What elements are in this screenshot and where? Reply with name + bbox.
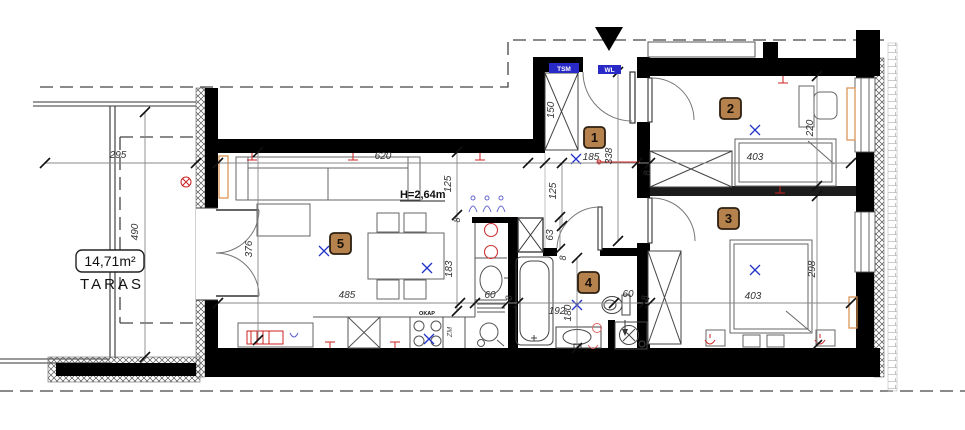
floor-plan-canvas: 295 490 620 376 485 125 125 150 185 338 …	[0, 0, 965, 430]
tv-icon	[247, 331, 283, 344]
dim-wall8-wc: 8	[640, 295, 650, 300]
upper-niche-outline	[648, 42, 755, 57]
console-mark	[290, 333, 298, 337]
stool	[743, 335, 760, 347]
ventilation-shaft	[518, 218, 543, 252]
dim-living-width: 620	[375, 151, 392, 162]
burner	[431, 321, 441, 331]
kitchen-sink-bowl	[480, 323, 498, 341]
dim-kitchen-top8: 8	[452, 217, 462, 222]
dim-wall8-hall: 8	[642, 170, 652, 175]
badge-room-5: 5	[330, 233, 351, 254]
badge-room-3: 3	[718, 208, 739, 229]
coffee-table	[257, 204, 310, 236]
dim-terrace-width: 295	[109, 150, 127, 161]
dim-wardrobe-depth: 150	[546, 101, 557, 118]
badge-room-1: 1	[584, 127, 605, 148]
dim-room3-depth: 298	[807, 260, 818, 278]
svg-text:3: 3	[725, 211, 732, 226]
oven-column	[485, 224, 498, 259]
dim-shaft8: 8	[558, 255, 568, 260]
tv-stand	[238, 323, 313, 347]
dim-shaft-height: 63	[545, 229, 556, 241]
terrace-name-text: TARAS	[80, 276, 144, 293]
stool	[767, 335, 784, 347]
window-room3	[855, 212, 875, 272]
room3-furniture	[706, 240, 835, 347]
chair	[404, 213, 426, 232]
burner	[431, 336, 441, 346]
tsm-label: TSM	[557, 66, 571, 73]
room2-wardrobe	[650, 151, 732, 187]
room3-wardrobe	[648, 251, 681, 344]
dim-wc60: 60	[622, 289, 634, 300]
dim-living-bottom: 485	[339, 290, 356, 301]
terrace-label: 14,71m² TARAS	[76, 250, 144, 293]
height-note-text: H=2,64m	[400, 189, 446, 201]
bathtub	[516, 257, 553, 345]
dim-bath-depth: 180	[563, 304, 574, 321]
entrance-arrow-icon	[595, 27, 623, 51]
svg-text:4: 4	[585, 275, 593, 290]
dim-hall-length: 338	[604, 147, 615, 164]
drawer-unit	[477, 304, 505, 312]
window-room2	[855, 78, 875, 152]
dim-room2-depth: 220	[805, 119, 816, 137]
chair	[404, 280, 426, 299]
burner	[414, 321, 424, 331]
floor-plan-page: 295 490 620 376 485 125 125 150 185 338 …	[0, 0, 965, 430]
dim-hall-width: 185	[583, 152, 600, 163]
dim-kitchen-run: 183	[444, 260, 455, 277]
svg-text:2: 2	[727, 101, 734, 116]
coat-hooks-icon	[469, 196, 505, 212]
dim-terrace-depth: 490	[130, 223, 141, 240]
room2-furniture	[735, 86, 837, 186]
dim-living-depth: 376	[244, 240, 255, 257]
terrace-area-text: 14,71m²	[84, 253, 136, 269]
radiator-room2	[847, 88, 855, 140]
room2-door	[637, 78, 694, 122]
chair	[377, 213, 399, 232]
radiator-living	[219, 156, 228, 198]
walls	[56, 30, 880, 377]
chair	[377, 280, 399, 299]
burner	[414, 336, 424, 346]
height-note: H=2,64m	[400, 189, 446, 201]
badge-room-2: 2	[720, 98, 741, 119]
dim-counter60: 60	[484, 290, 496, 301]
dim-room2-width: 403	[747, 152, 764, 163]
wl-label: WL	[604, 67, 614, 74]
terrace-railing	[0, 102, 196, 363]
dining-table	[368, 233, 444, 279]
dim-room3-width: 403	[745, 291, 762, 302]
svg-text:1: 1	[591, 130, 598, 145]
svg-text:5: 5	[337, 236, 344, 251]
dim-wall8-bath: 8	[504, 295, 514, 300]
room3-door	[637, 198, 695, 243]
dim-125-hall: 125	[548, 182, 559, 199]
okap-label: OKAP	[419, 311, 435, 317]
badge-room-4: 4	[578, 272, 599, 293]
zm-label: ZM	[447, 327, 454, 338]
bed-double	[730, 240, 812, 333]
